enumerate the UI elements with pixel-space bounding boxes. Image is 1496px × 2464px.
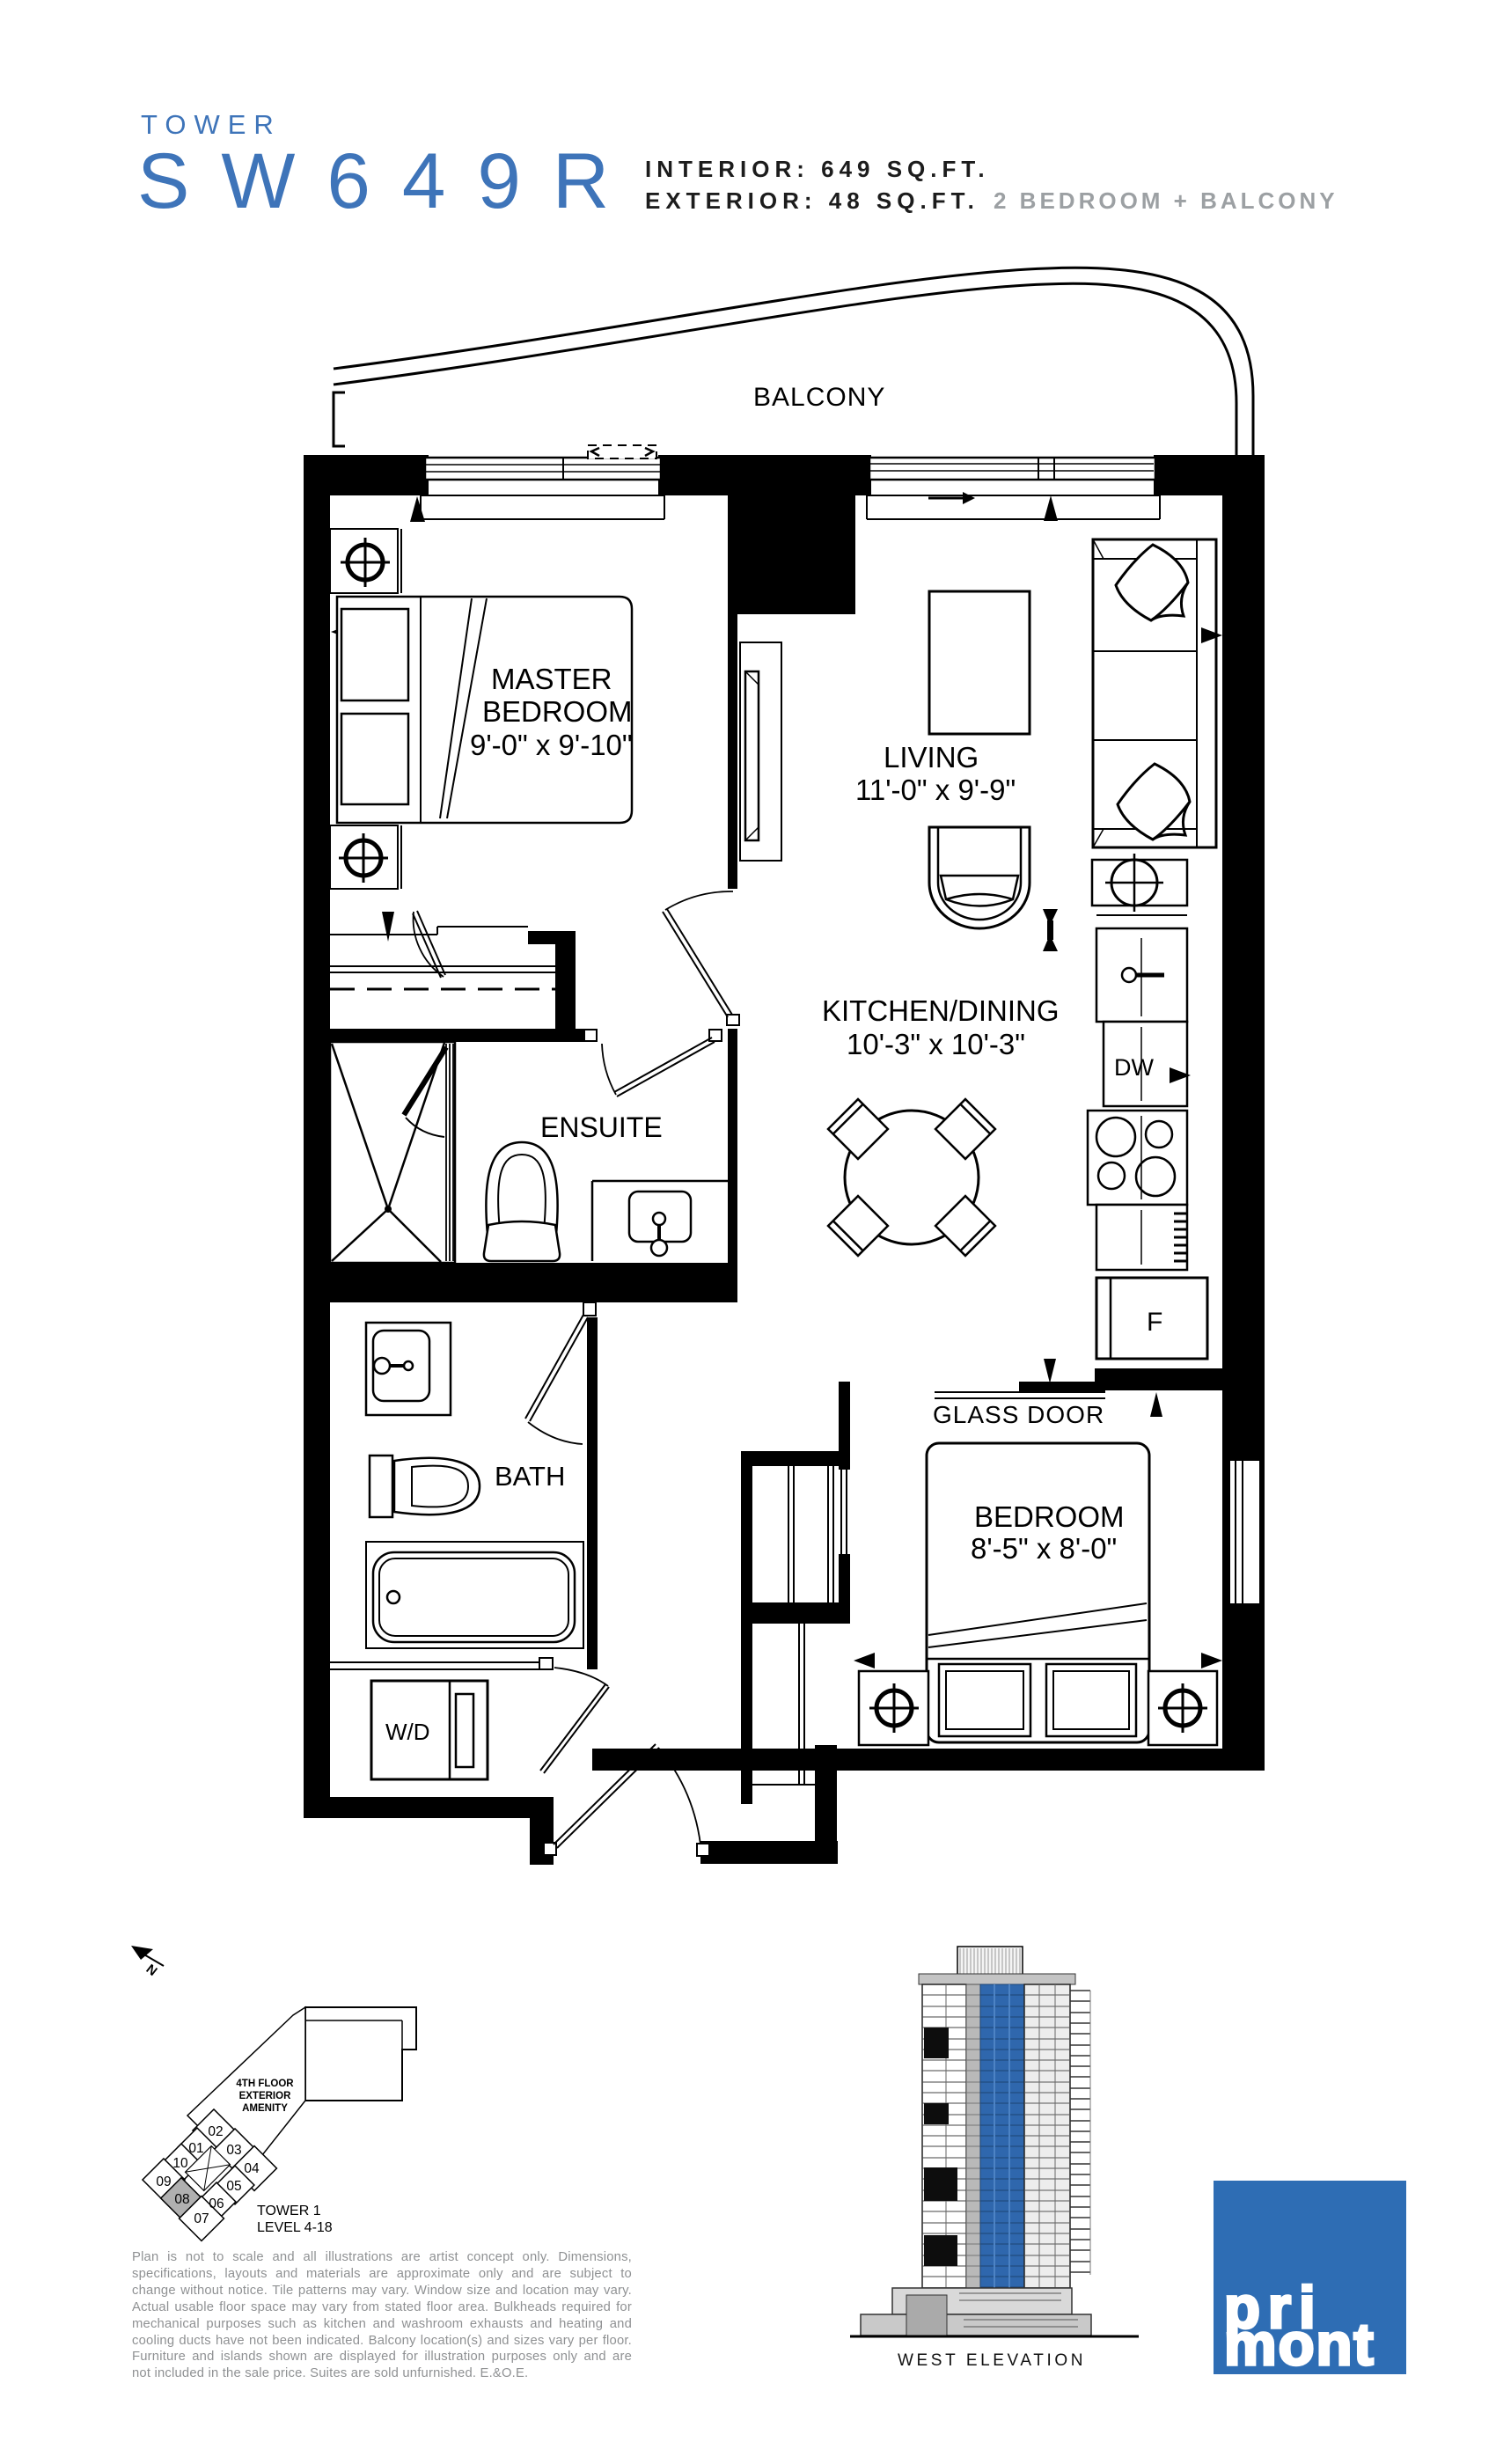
svg-text:KITCHEN/DINING: KITCHEN/DINING	[822, 994, 1060, 1027]
svg-text:01: 01	[188, 2141, 203, 2156]
svg-text:GLASS DOOR: GLASS DOOR	[933, 1401, 1104, 1428]
svg-text:10'-3" x 10'-3": 10'-3" x 10'-3"	[847, 1028, 1025, 1060]
svg-text:08: 08	[174, 2192, 189, 2207]
svg-text:02: 02	[208, 2124, 223, 2139]
svg-text:11'-0" x 9'-9": 11'-0" x 9'-9"	[855, 774, 1016, 806]
svg-text:4TH FLOOR: 4TH FLOOR	[236, 2079, 294, 2089]
svg-text:TOWER 1: TOWER 1	[257, 2204, 321, 2218]
svg-text:W/D: W/D	[385, 1719, 430, 1745]
svg-text:AMENITY: AMENITY	[242, 2103, 288, 2114]
svg-text:BALCONY: BALCONY	[753, 383, 885, 412]
svg-text:DW: DW	[1114, 1054, 1154, 1081]
svg-text:8'-5" x 8'-0": 8'-5" x 8'-0"	[971, 1532, 1117, 1565]
svg-text:BATH: BATH	[495, 1461, 565, 1492]
svg-text:ENSUITE: ENSUITE	[540, 1111, 663, 1143]
svg-text:WEST ELEVATION: WEST ELEVATION	[898, 2351, 1086, 2370]
svg-text:04: 04	[244, 2161, 260, 2176]
svg-text:EXTERIOR: EXTERIOR	[239, 2091, 291, 2101]
svg-text:05: 05	[226, 2179, 241, 2194]
svg-text:N: N	[143, 1962, 160, 1979]
svg-text:LIVING: LIVING	[884, 741, 979, 774]
svg-text:BEDROOM: BEDROOM	[974, 1500, 1125, 1533]
svg-text:BEDROOM: BEDROOM	[482, 695, 633, 728]
svg-text:03: 03	[226, 2143, 241, 2158]
svg-text:MASTER: MASTER	[491, 663, 612, 695]
svg-text:LEVEL 4-18: LEVEL 4-18	[257, 2220, 333, 2235]
svg-text:9'-0" x 9'-10": 9'-0" x 9'-10"	[470, 729, 633, 761]
svg-text:07: 07	[194, 2211, 209, 2226]
svg-text:06: 06	[209, 2196, 224, 2211]
svg-text:09: 09	[156, 2174, 171, 2189]
svg-text:F: F	[1147, 1308, 1162, 1337]
svg-text:10: 10	[172, 2156, 188, 2171]
svg-text:mont: mont	[1224, 2312, 1375, 2378]
